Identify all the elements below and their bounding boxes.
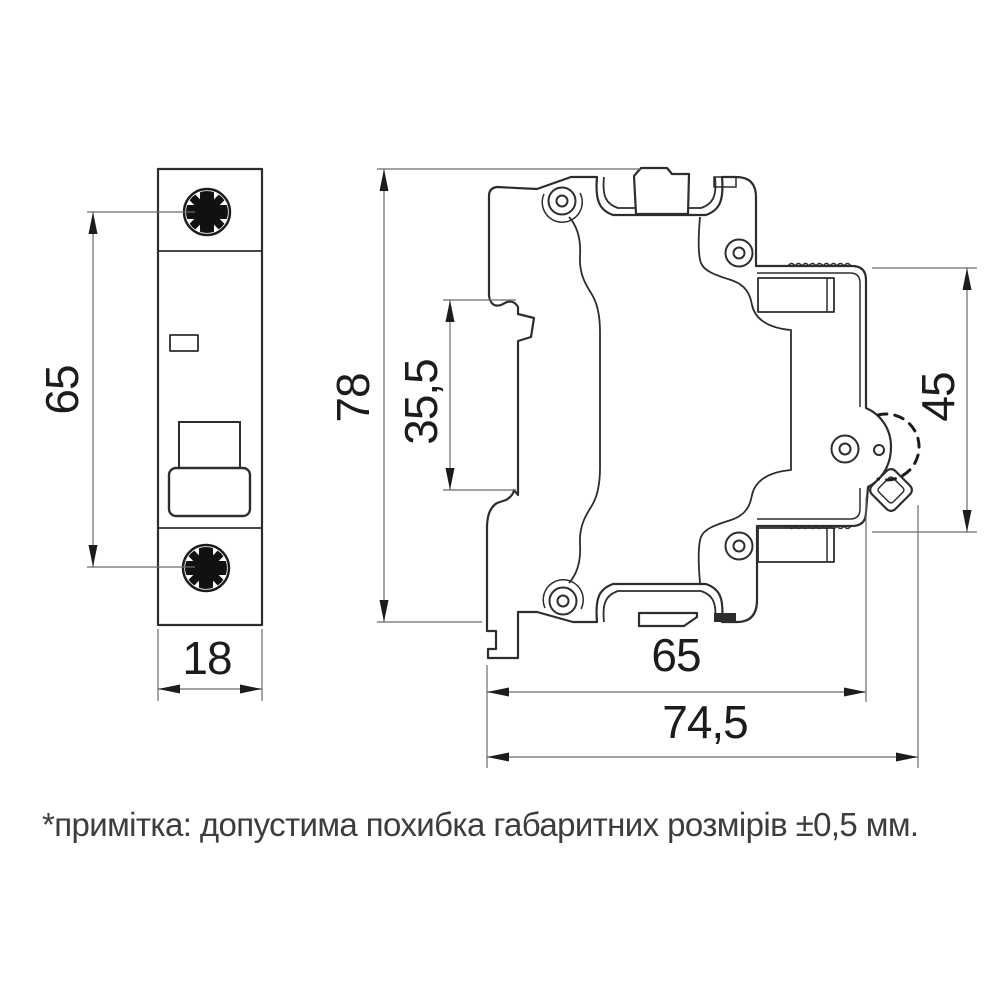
- side-view: 78 35,5 45 65: [327, 168, 977, 768]
- dim-label-overall-height: 78: [327, 373, 379, 422]
- screw-bottom-icon: [183, 545, 229, 591]
- front-view: 65 18: [36, 169, 262, 701]
- technical-drawing-page: 65 18: [0, 0, 1000, 1000]
- dim-label-mounting-pitch: 65: [36, 365, 88, 414]
- side-body-outline: [487, 177, 891, 658]
- dim-label-front-width: 18: [182, 632, 231, 684]
- side-toggle-handle: [634, 168, 689, 214]
- breaker-dimension-drawing: 65 18: [0, 0, 1000, 1000]
- dim-label-body-depth: 65: [651, 629, 700, 681]
- face-step-bottom: [714, 613, 736, 622]
- front-toggle-handle: [169, 422, 250, 516]
- dim-front-width: 18: [158, 629, 262, 701]
- dim-label-overall-depth: 74,5: [662, 696, 748, 748]
- terminal-opening-bottom: [758, 528, 834, 562]
- dim-label-rear-height: 45: [912, 372, 964, 421]
- latch-pivot-hole: [874, 445, 884, 455]
- dim-label-din-slot: 35,5: [395, 359, 447, 445]
- dim-din-slot: 35,5: [395, 300, 516, 490]
- bottom-cap-tab: [639, 613, 697, 626]
- tolerance-note: *примітка: допустима похибка габаритних …: [42, 806, 972, 844]
